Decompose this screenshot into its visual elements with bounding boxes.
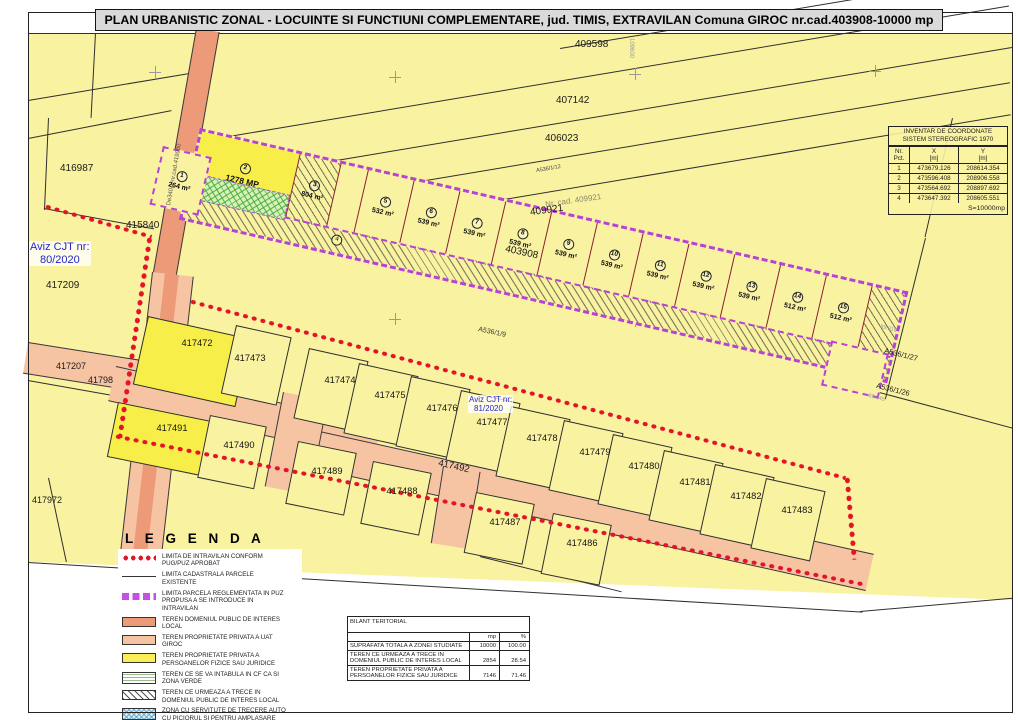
legend-item-text: TEREN DOMENIUL PUBLIC DE INTERES LOCAL xyxy=(162,616,290,631)
parcel-area: 539 m² xyxy=(554,249,577,261)
parcel-label-417483: 417483 xyxy=(771,505,823,515)
coordinate-table-title-2: SISTEM STEREOGRAFIC 1970 xyxy=(889,136,1007,144)
scale-note: S=10000mp xyxy=(889,203,1007,214)
legend: LIMITA DE INTRAVILAN CONFORM PUG/PUZ APR… xyxy=(118,549,302,720)
parcel-label-406023: 406023 xyxy=(545,133,578,144)
grid-cross xyxy=(389,313,401,325)
bilant-row-mp: 7146 xyxy=(469,666,499,680)
bilant-row-mp: 2854 xyxy=(469,651,499,665)
parcel-label-417474: 417474 xyxy=(314,375,366,385)
parcel-label-417489: 417489 xyxy=(301,466,353,476)
coordinate-table: INVENTAR DE COORDONATE SISTEM STEREOGRAF… xyxy=(888,126,1008,215)
parcel-number-badge: 11 xyxy=(653,259,666,272)
parcel-label-41798: 41798 xyxy=(88,375,113,385)
coordinate-row: 3 473564.692 208897.692 xyxy=(889,183,1007,193)
legend-item: TEREN PROPRIETATE PRIVATA A PERSOANELOR … xyxy=(122,652,298,667)
aviz-line-2: 80/2020 xyxy=(30,254,90,267)
parcel-label-417476: 417476 xyxy=(416,403,468,413)
bilant-header-label xyxy=(348,633,469,641)
coordinate-x: 473679.126 xyxy=(910,164,959,173)
legend-item: LIMITA DE INTRAVILAN CONFORM PUG/PUZ APR… xyxy=(122,553,298,568)
legend-item-text: TEREN CE URMEAZA A TRECE IN DOMENIUL PUB… xyxy=(162,689,290,704)
parcel-label-417972: 417972 xyxy=(32,495,62,505)
legend-item-text: TEREN PROPRIETATE PRIVATA A UAT GIROC xyxy=(162,634,290,649)
parcel-label-417475: 417475 xyxy=(364,390,416,400)
bilant-row: TEREN PROPRIETATE PRIVATA A PERSOANELOR … xyxy=(348,665,529,680)
bilant-row-label: SUPRAFATA TOTALA A ZONEI STUDIATE xyxy=(348,642,469,650)
header-x-unit: [m] xyxy=(910,155,958,162)
bilant-row-label: TEREN PROPRIETATE PRIVATA A PERSOANELOR … xyxy=(348,666,469,680)
parcel-area: 539 m² xyxy=(646,270,669,282)
coordinate-y: 208605.551 xyxy=(959,194,1007,203)
parcel-number-badge: 3 xyxy=(308,179,321,192)
coordinate-table-title: INVENTAR DE COORDONATE SISTEM STEREOGRAF… xyxy=(889,127,1007,146)
parcel-label-417491: 417491 xyxy=(146,423,198,433)
cadastral-limit-swatch xyxy=(122,576,156,577)
parcel-area: 804 m² xyxy=(300,191,323,203)
parcel-label-417490: 417490 xyxy=(213,440,265,450)
point-number: 4 xyxy=(889,194,910,203)
legend-item: TEREN PROPRIETATE PRIVATA A UAT GIROC xyxy=(122,634,298,649)
parcel-number-badge: 7 xyxy=(470,217,483,230)
parcel-number-badge: 2 xyxy=(239,162,252,175)
point-number: 1 xyxy=(889,164,910,173)
plan-title: PLAN URBANISTIC ZONAL - LOCUINTE SI FUNC… xyxy=(105,13,934,27)
coordinate-x: 473596.408 xyxy=(910,174,959,183)
parcel-label-417478: 417478 xyxy=(516,433,568,443)
grid-cross xyxy=(869,65,881,77)
parcel-number-badge: 13 xyxy=(745,280,758,293)
bilant-row-pct: 71.46 xyxy=(499,666,529,680)
parcel-area: 512 m² xyxy=(829,313,852,325)
legend-item-text: LIMITA CADASTRALA PARCELE EXISTENTE xyxy=(162,571,290,586)
legend-item: TEREN CE URMEAZA A TRECE IN DOMENIUL PUB… xyxy=(122,689,298,704)
bilant-header: mp % xyxy=(348,632,529,641)
parcel-number-badge: 15 xyxy=(836,301,849,314)
parcel-number-badge: 12 xyxy=(699,269,712,282)
plan-sheet: 2 1278 MP 3 804 m² 5 532 m² 6 539 m² 7 xyxy=(0,0,1018,720)
aviz-line-2: 81/2020 xyxy=(469,404,512,413)
legend-item-text: TEREN CE SE VA INTABULA IN CF CA SI ZONA… xyxy=(162,671,290,686)
parcel-label-417477: 417477 xyxy=(466,417,518,427)
coordinate-y: 208614.354 xyxy=(959,164,1007,173)
header-x-letter: X xyxy=(910,148,958,155)
parcel-area: 539 m² xyxy=(737,291,760,303)
parcel-label-417472: 417472 xyxy=(171,338,223,348)
parcel-label-416987: 416987 xyxy=(60,163,93,174)
legend-item-text: LIMITA PARCELA REGLEMENTATA IN PUZ PROPU… xyxy=(162,590,290,612)
bilant-row-pct: 28.54 xyxy=(499,651,529,665)
legend-title: L E G E N D A xyxy=(125,531,265,546)
public-domain-swatch xyxy=(122,617,156,627)
parcel-label-417207: 417207 xyxy=(56,361,86,371)
parcel-number-badge: 14 xyxy=(791,291,804,304)
bilant-header-pct: % xyxy=(499,633,529,641)
coordinate-row: 4 473647.392 208605.551 xyxy=(889,193,1007,203)
parcel-number-badge: 4 xyxy=(330,234,343,247)
puz-limit-swatch xyxy=(122,593,156,600)
parcel-area: 532 m² xyxy=(371,207,394,219)
territorial-balance-table: BILANT TERITORIAL mp % SUPRAFATA TOTALA … xyxy=(347,616,530,681)
uat-private-swatch xyxy=(122,635,156,645)
aviz-cjt-80: Aviz CJT nr: 80/2020 xyxy=(29,241,91,266)
legend-item: LIMITA CADASTRALA PARCELE EXISTENTE xyxy=(122,571,298,586)
point-number: 3 xyxy=(889,184,910,193)
parcel-area: 512 m² xyxy=(783,302,806,314)
parcel-number-badge: 10 xyxy=(607,248,620,261)
coordinate-x: 473564.692 xyxy=(910,184,959,193)
header-y: Y [m] xyxy=(959,147,1007,163)
legend-item: LIMITA PARCELA REGLEMENTATA IN PUZ PROPU… xyxy=(122,590,298,612)
parcel-label-417473: 417473 xyxy=(224,353,276,363)
map-top-edge xyxy=(28,33,1012,34)
parcel-label-417480: 417480 xyxy=(618,461,670,471)
future-public-swatch xyxy=(122,690,156,700)
parcel-area: 539 m² xyxy=(463,228,486,240)
parcel-label-415840: 415840 xyxy=(126,220,159,231)
bilant-row: TEREN CE URMEAZA A TRECE IN DOMENIUL PUB… xyxy=(348,650,529,665)
header-nr: Nr. Pct. xyxy=(889,147,910,163)
legend-item-text: ZONA CU SERVITUTE DE TRECERE AUTO CU PIC… xyxy=(162,707,290,720)
bilant-row-label: TEREN CE URMEAZA A TRECE IN DOMENIUL PUB… xyxy=(348,651,469,665)
map-canvas: 2 1278 MP 3 804 m² 5 532 m² 6 539 m² 7 xyxy=(0,0,1012,614)
bilant-header-mp: mp xyxy=(469,633,499,641)
bilant-row: SUPRAFATA TOTALA A ZONEI STUDIATE 10000 … xyxy=(348,641,529,650)
grid-coordinate-label: 109600 xyxy=(628,38,634,58)
grid-cross xyxy=(389,71,401,83)
point-number: 2 xyxy=(889,174,910,183)
legend-item: TEREN CE SE VA INTABULA IN CF CA SI ZONA… xyxy=(122,671,298,686)
parcel-label-409598: 409598 xyxy=(575,39,608,50)
coordinate-y: 208897.692 xyxy=(959,184,1007,193)
parcel-number-badge: 5 xyxy=(378,195,391,208)
coordinate-table-title-1: INVENTAR DE COORDONATE xyxy=(889,128,1007,136)
grid-cross xyxy=(149,66,161,78)
coordinate-x: 473647.392 xyxy=(910,194,959,203)
bilant-title: BILANT TERITORIAL xyxy=(348,617,529,632)
parcel-label-407142: 407142 xyxy=(556,95,589,106)
grid-cross xyxy=(629,68,641,80)
bilant-row-pct: 100.00 xyxy=(499,642,529,650)
intravilan-limit-swatch xyxy=(122,554,156,562)
parcel-number-badge: 9 xyxy=(562,238,575,251)
legend-item-text: TEREN PROPRIETATE PRIVATA A PERSOANELOR … xyxy=(162,652,290,667)
header-y-unit: [m] xyxy=(959,155,1007,162)
coordinate-row: 2 473596.408 208906.558 xyxy=(889,173,1007,183)
coordinate-row: 1 473679.126 208614.354 xyxy=(889,163,1007,173)
parcel-label-417481: 417481 xyxy=(669,477,721,487)
header-y-letter: Y xyxy=(959,148,1007,155)
coordinate-table-header: Nr. Pct. X [m] Y [m] xyxy=(889,146,1007,163)
private-property-swatch xyxy=(122,653,156,663)
parcel-label-417488: 417488 xyxy=(376,486,428,496)
parcel-label-417487: 417487 xyxy=(479,517,531,527)
boundary-line xyxy=(860,598,1012,612)
parcel-label-417209: 417209 xyxy=(46,280,79,291)
aviz-line-1: Aviz CJT nr: xyxy=(30,241,90,254)
bilant-row-mp: 10000 xyxy=(469,642,499,650)
legend-item: ZONA CU SERVITUTE DE TRECERE AUTO CU PIC… xyxy=(122,707,298,720)
legend-item: TEREN DOMENIUL PUBLIC DE INTERES LOCAL xyxy=(122,616,298,631)
parcel-area: 539 m² xyxy=(417,217,440,229)
parcel-number-badge: 6 xyxy=(424,206,437,219)
coordinate-y: 208906.558 xyxy=(959,174,1007,183)
parcel-area: 539 m² xyxy=(692,281,715,293)
parcel-label-417479: 417479 xyxy=(569,447,621,457)
parcel-number-badge: 8 xyxy=(516,227,529,240)
parcel-area: 539 m² xyxy=(600,260,623,272)
header-x: X [m] xyxy=(910,147,959,163)
servitude-zone-swatch xyxy=(122,708,156,720)
aviz-cjt-81: Aviz CJT nr: 81/2020 xyxy=(468,395,513,413)
green-zone-swatch xyxy=(122,672,156,684)
parcel-label-417486: 417486 xyxy=(556,538,608,548)
legend-item-text: LIMITA DE INTRAVILAN CONFORM PUG/PUZ APR… xyxy=(162,553,290,568)
plan-title-bar: PLAN URBANISTIC ZONAL - LOCUINTE SI FUNC… xyxy=(95,9,943,31)
aviz-line-1: Aviz CJT nr: xyxy=(469,395,512,404)
parcel-label-417482: 417482 xyxy=(720,491,772,501)
